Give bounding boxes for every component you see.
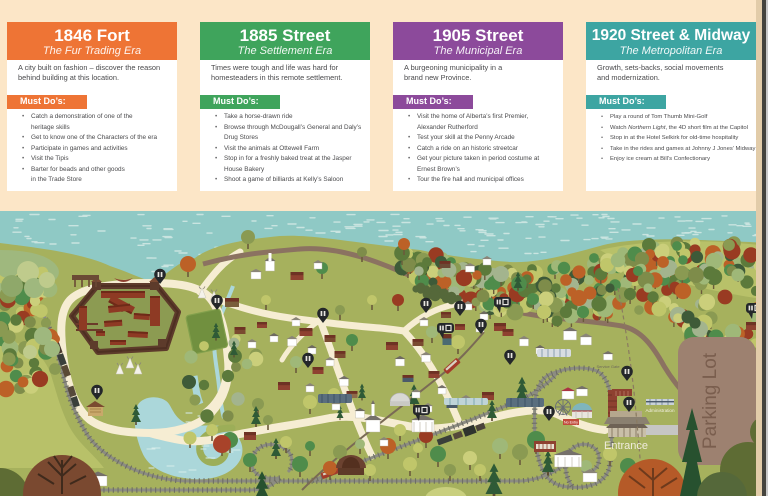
svg-text:Administration: Administration: [645, 408, 675, 413]
svg-text:Parking Lot: Parking Lot: [700, 352, 721, 449]
svg-text:Entrance: Entrance: [604, 440, 648, 452]
svg-text:Service Gate: Service Gate: [596, 364, 620, 369]
svg-text:No Entry: No Entry: [564, 421, 578, 425]
